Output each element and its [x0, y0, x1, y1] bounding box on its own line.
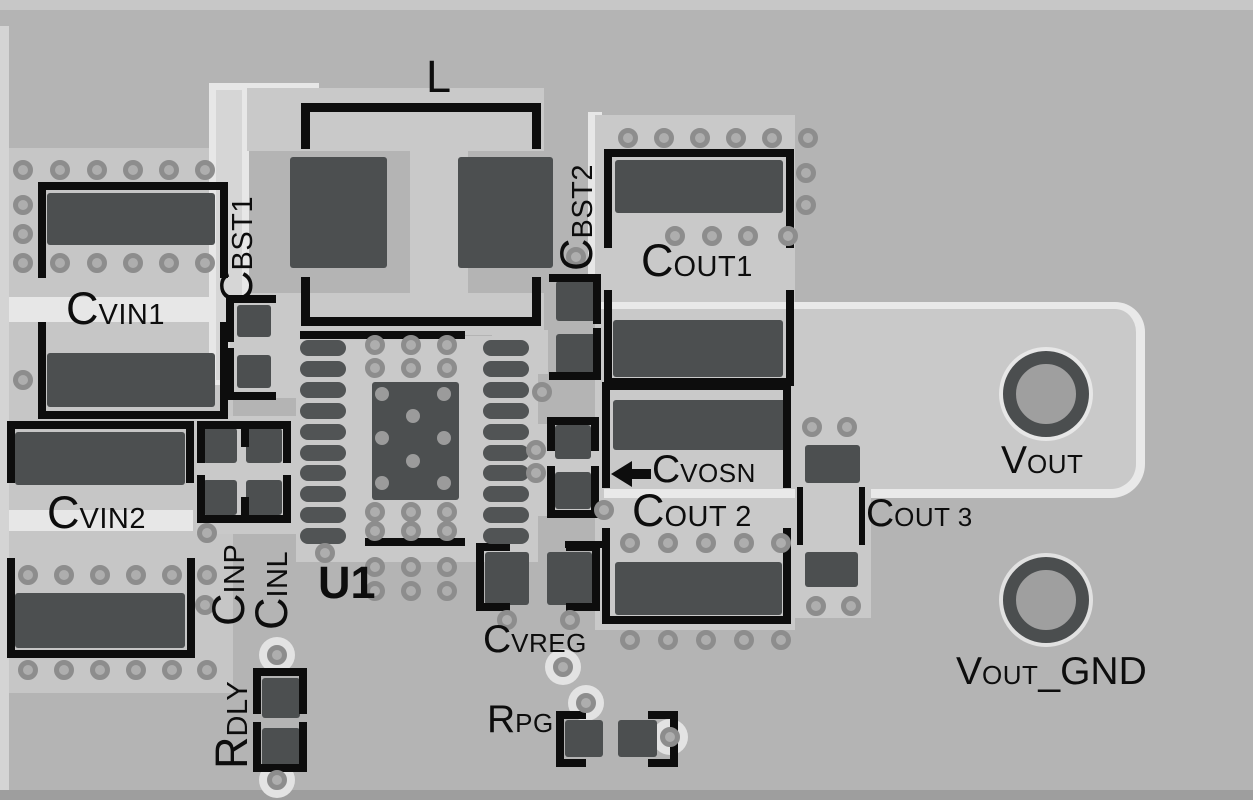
- label-sub: VOSN: [680, 460, 756, 486]
- ic-pin-pad: [300, 424, 346, 440]
- ic-pin-pad: [483, 403, 529, 419]
- label-main: C: [632, 488, 665, 533]
- via: [796, 163, 816, 183]
- label-rdly: RDLY: [209, 681, 254, 769]
- inductor-outline: [532, 103, 541, 149]
- label-sub: INL: [264, 551, 293, 598]
- label-sub: BST1: [229, 196, 258, 271]
- cvreg-bracket: [476, 543, 510, 611]
- ic-pin-pad: [300, 361, 346, 377]
- via: [690, 128, 710, 148]
- inductor-outline: [301, 103, 310, 149]
- label-main: R: [487, 700, 515, 739]
- via: [437, 581, 457, 601]
- via: [195, 160, 215, 180]
- label-cvin1: CVIN1: [66, 286, 165, 331]
- via: [660, 727, 680, 747]
- via: [123, 253, 143, 273]
- via: [654, 128, 674, 148]
- cvosn-bracket: [547, 466, 599, 518]
- via: [526, 463, 546, 483]
- thermal-via: [437, 431, 451, 445]
- via: [696, 533, 716, 553]
- via: [267, 770, 287, 790]
- via: [126, 565, 146, 585]
- label-sub: OUT1: [674, 253, 753, 282]
- cout3-outline: [859, 487, 865, 545]
- via: [365, 502, 385, 522]
- via: [197, 523, 217, 543]
- via: [18, 660, 38, 680]
- via: [658, 533, 678, 553]
- via: [696, 630, 716, 650]
- label-cbst1: CBST1: [214, 196, 259, 303]
- via: [437, 521, 457, 541]
- rdly-bracket: [253, 668, 307, 714]
- label-u1: U1: [318, 560, 376, 605]
- via: [267, 645, 287, 665]
- label-cinp: CINP: [206, 544, 251, 626]
- vout-gnd-testpoint: [1003, 557, 1089, 643]
- via: [620, 533, 640, 553]
- via: [806, 596, 826, 616]
- ic-pin-pad: [483, 528, 529, 544]
- via: [54, 565, 74, 585]
- cvreg-bracket: [566, 543, 600, 611]
- ic-pin-pad: [300, 445, 346, 461]
- pour-sw-top: [247, 88, 544, 151]
- label-main: V: [1001, 441, 1027, 480]
- cbst2-bracket: [549, 328, 601, 380]
- ic-pin-pad: [483, 424, 529, 440]
- via: [54, 660, 74, 680]
- via: [726, 128, 746, 148]
- label-main: C: [483, 620, 511, 659]
- via: [123, 160, 143, 180]
- cinp-cinl-bracket: [197, 421, 291, 463]
- via: [796, 195, 816, 215]
- via: [50, 160, 70, 180]
- via: [13, 253, 33, 273]
- cout3-pad: [805, 552, 858, 587]
- label-l: L: [426, 54, 451, 99]
- thermal-via: [375, 431, 389, 445]
- via: [50, 253, 70, 273]
- label-vout-gnd: VOUT_GND: [956, 652, 1147, 691]
- label-cbst2: CBST2: [554, 164, 599, 271]
- label-sub: OUT: [982, 662, 1038, 688]
- cvosn-bracket: [547, 417, 599, 451]
- ic-pin-pad: [300, 465, 346, 481]
- label-cinl: CINL: [249, 551, 294, 630]
- label-main: V: [956, 652, 982, 691]
- arrow-head-icon: [611, 461, 632, 487]
- via: [159, 160, 179, 180]
- label-sub: VIN1: [99, 301, 165, 330]
- thermal-via: [406, 454, 420, 468]
- cout1-bracket: [604, 149, 794, 248]
- thermal-via: [375, 476, 389, 490]
- via: [734, 630, 754, 650]
- via: [437, 502, 457, 522]
- thermal-via: [437, 476, 451, 490]
- via: [553, 657, 573, 677]
- label-vout: VOUT: [1001, 441, 1083, 480]
- board-edge-top: [0, 0, 1253, 10]
- label-main: C: [47, 490, 80, 535]
- label-sub: INP: [221, 544, 250, 594]
- via: [532, 382, 552, 402]
- via: [401, 335, 421, 355]
- cvin1-bracket: [38, 322, 228, 419]
- vout-testpoint: [1003, 351, 1089, 437]
- via: [771, 630, 791, 650]
- rpg-bracket: [556, 711, 586, 767]
- label-cout3: COUT 3: [866, 494, 973, 533]
- cout3-outline: [797, 487, 803, 545]
- label-main: C: [249, 598, 294, 631]
- label-main: R: [209, 737, 254, 770]
- ic-pin-pad: [483, 507, 529, 523]
- ic-pin-pad: [300, 403, 346, 419]
- label-main: C: [652, 450, 680, 489]
- ic-pin-pad: [483, 382, 529, 398]
- ic-pin-pad: [483, 465, 529, 481]
- via: [658, 630, 678, 650]
- via: [762, 128, 782, 148]
- board-edge-left: [0, 26, 9, 791]
- label-main: C: [206, 594, 251, 627]
- ic-pin-pad: [483, 486, 529, 502]
- via: [594, 500, 614, 520]
- via: [618, 128, 638, 148]
- rdly-bracket: [253, 722, 307, 772]
- via: [365, 521, 385, 541]
- label-cvosn: CVOSN: [652, 450, 756, 489]
- label-cout2: COUT 2: [632, 488, 752, 533]
- label-tail: _GND: [1038, 652, 1146, 691]
- label-main: U1: [318, 560, 376, 605]
- via: [526, 440, 546, 460]
- via: [401, 557, 421, 577]
- label-sub: DLY: [224, 681, 253, 737]
- via: [18, 565, 38, 585]
- label-rpg: RPG: [487, 700, 554, 739]
- ic-pin-pad: [483, 340, 529, 356]
- via: [437, 557, 457, 577]
- label-main: C: [66, 286, 99, 331]
- cbst1-bracket: [226, 348, 276, 400]
- inductor-pad: [458, 157, 553, 268]
- ic-pin-pad: [300, 528, 346, 544]
- via: [798, 128, 818, 148]
- via: [365, 335, 385, 355]
- ic-pin-pad: [300, 507, 346, 523]
- inductor-pad: [290, 157, 387, 268]
- via: [837, 417, 857, 437]
- via: [620, 630, 640, 650]
- label-sub: BST2: [569, 164, 598, 239]
- via: [365, 358, 385, 378]
- label-cvin2: CVIN2: [47, 490, 146, 535]
- via: [841, 596, 861, 616]
- via: [13, 370, 33, 390]
- ic-pin-pad: [483, 361, 529, 377]
- inductor-outline: [301, 103, 541, 112]
- label-sub: PG: [515, 710, 554, 736]
- via: [197, 660, 217, 680]
- ic-pin-pad: [300, 382, 346, 398]
- via: [13, 195, 33, 215]
- via: [90, 565, 110, 585]
- via: [576, 693, 596, 713]
- via: [13, 160, 33, 180]
- label-main: C: [641, 238, 674, 283]
- via: [734, 533, 754, 553]
- via: [778, 226, 798, 246]
- ic-pin-pad: [300, 486, 346, 502]
- thermal-via: [437, 387, 451, 401]
- inductor-outline: [301, 317, 541, 326]
- label-sub: OUT: [1027, 451, 1083, 477]
- via: [401, 358, 421, 378]
- label-main: C: [866, 494, 894, 533]
- via: [401, 581, 421, 601]
- cvin2-bracket: [7, 421, 194, 483]
- arrow-bar: [630, 469, 651, 479]
- cout3-pad: [805, 445, 860, 483]
- via: [437, 358, 457, 378]
- via: [802, 417, 822, 437]
- cbst2-bracket: [549, 274, 601, 324]
- label-sub: VREG: [511, 630, 587, 656]
- pcb-layout-board: L CVIN1 CVIN2 CBST1 CBST2 COUT1 COUT 2 C…: [0, 0, 1253, 800]
- via: [162, 565, 182, 585]
- via: [401, 521, 421, 541]
- via: [87, 160, 107, 180]
- cinp-cinl-bracket: [197, 475, 291, 523]
- ic-pin-pad: [483, 445, 529, 461]
- via: [162, 660, 182, 680]
- via: [126, 660, 146, 680]
- inductor-outline: [301, 277, 310, 326]
- label-main: L: [426, 54, 451, 99]
- via: [771, 533, 791, 553]
- via: [437, 335, 457, 355]
- thermal-via: [375, 387, 389, 401]
- via: [13, 224, 33, 244]
- board-edge-bottom: [0, 790, 1253, 800]
- inductor-outline: [532, 277, 541, 326]
- pour-sw-bottom: [247, 293, 544, 335]
- label-cvreg: CVREG: [483, 620, 587, 659]
- via: [87, 253, 107, 273]
- cvosn-arrow-icon: [611, 461, 653, 487]
- thermal-via: [406, 409, 420, 423]
- label-sub: OUT 2: [665, 503, 752, 532]
- ic-pin-pad: [300, 340, 346, 356]
- cout1-bracket: [604, 290, 794, 386]
- via: [159, 253, 179, 273]
- label-sub: VIN2: [80, 505, 146, 534]
- via: [90, 660, 110, 680]
- label-main: C: [554, 239, 599, 272]
- via: [401, 502, 421, 522]
- label-sub: OUT 3: [894, 504, 973, 530]
- label-cout1: COUT1: [641, 238, 753, 283]
- label-main: C: [214, 271, 259, 304]
